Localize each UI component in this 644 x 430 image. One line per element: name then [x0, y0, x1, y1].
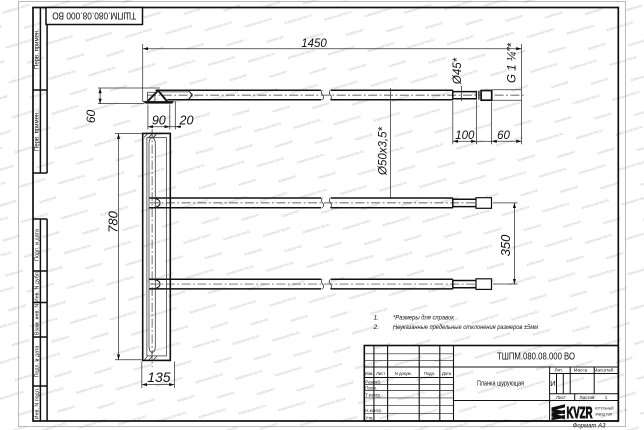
svg-text:Подп.: Подп. — [424, 371, 435, 376]
svg-text:Инв. N дубл.: Инв. N дубл. — [35, 271, 41, 303]
svg-text:Разраб.: Разраб. — [365, 379, 381, 384]
svg-text:Масса: Масса — [574, 368, 588, 373]
svg-text:И: И — [550, 379, 555, 388]
svg-text:КОТЕЛЬНЫЙ: КОТЕЛЬНЫЙ — [595, 406, 614, 411]
svg-text:Пров.: Пров. — [365, 386, 377, 391]
svg-text:60: 60 — [84, 110, 98, 124]
svg-text:Инв. N подл.: Инв. N подл. — [35, 388, 41, 420]
svg-text:Взам. инв. N: Взам. инв. N — [35, 304, 41, 336]
svg-text:Н.контр.: Н.контр. — [365, 408, 382, 413]
svg-text:Неуказанные предельные отклоне: Неуказанные предельные отклонения размер… — [393, 323, 538, 331]
svg-text:Ø50х3,5*: Ø50х3,5* — [378, 127, 390, 176]
svg-text:ТШПМ.080.08.000 ВО: ТШПМ.080.08.000 ВО — [497, 352, 575, 363]
svg-text:350: 350 — [498, 234, 513, 256]
svg-text:Дата: Дата — [442, 371, 452, 376]
svg-text:1450: 1450 — [301, 38, 327, 50]
svg-text:1.: 1. — [374, 315, 380, 322]
svg-text:780: 780 — [106, 210, 121, 232]
svg-text:Лист: Лист — [376, 371, 385, 376]
svg-text:20: 20 — [179, 114, 194, 128]
svg-text:2.: 2. — [373, 324, 380, 331]
svg-text:Масштаб: Масштаб — [594, 368, 614, 373]
svg-text:100: 100 — [455, 130, 475, 142]
svg-text:*Размеры для справок: *Размеры для справок — [393, 314, 455, 322]
svg-text:Листов: Листов — [580, 395, 595, 400]
svg-text:ЗАВОД РЭП: ЗАВОД РЭП — [595, 412, 612, 417]
svg-text:135: 135 — [147, 369, 171, 385]
svg-text:90: 90 — [152, 114, 166, 128]
svg-text:Подп. и дата: Подп. и дата — [35, 229, 41, 261]
svg-text:Лист: Лист — [556, 395, 567, 400]
svg-text:Планка шурующая: Планка шурующая — [477, 381, 524, 388]
svg-text:Перв. примен.: Перв. примен. — [35, 111, 41, 151]
svg-text:Формат А3: Формат А3 — [573, 423, 606, 429]
svg-text:N докум.: N докум. — [395, 371, 412, 376]
svg-text:60: 60 — [497, 130, 510, 142]
svg-text:Лит.: Лит. — [554, 368, 563, 373]
svg-text:1: 1 — [605, 395, 608, 400]
svg-text:Подп. и дата: Подп. и дата — [35, 346, 41, 378]
svg-text:Т.контр.: Т.контр. — [365, 392, 381, 397]
svg-text:ТШПМ.080.08.000 ВО: ТШПМ.080.08.000 ВО — [52, 10, 136, 21]
svg-text:KVZR: KVZR — [567, 405, 593, 422]
svg-text:Утв.: Утв. — [365, 415, 373, 420]
svg-text:G 1 ¼"*: G 1 ¼"* — [507, 43, 519, 83]
svg-text:Ø45*: Ø45* — [452, 57, 464, 85]
svg-text:Изм.: Изм. — [365, 371, 374, 376]
svg-text:Перв. примен.: Перв. примен. — [35, 29, 41, 69]
